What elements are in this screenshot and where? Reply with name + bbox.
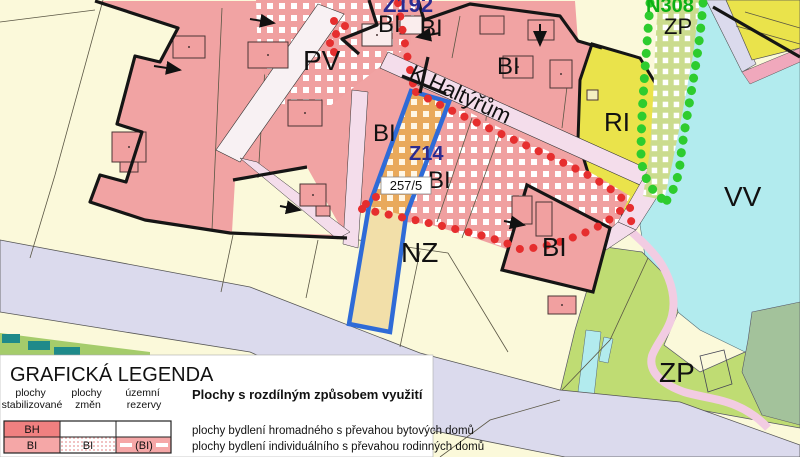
legend-title: GRAFICKÁ LEGENDA <box>10 363 214 386</box>
label-bi-2: BI <box>420 15 443 42</box>
label-bi-6: BI <box>542 232 567 262</box>
label-bi-1: BI <box>378 11 401 38</box>
parcel-number-text: 257/5 <box>390 178 423 193</box>
legend-panel: GRAFICKÁ LEGENDA plochy stabilizované pl… <box>0 355 484 457</box>
legend-code-bh: BH <box>24 424 39 436</box>
label-ri: RI <box>604 107 630 137</box>
label-zp-bottom: ZP <box>659 357 695 388</box>
label-bi-4: BI <box>373 120 396 147</box>
label-nz: NZ <box>401 237 438 268</box>
legend-code-bi-reserve: (BI) <box>135 440 153 452</box>
legend-col-changes: plochy změn <box>71 387 104 411</box>
label-bi-3: BI <box>497 53 520 80</box>
label-pv: PV <box>303 45 341 76</box>
parcel-number-callout[interactable]: 257/5 <box>381 177 431 194</box>
label-zp-top: ZP <box>664 14 692 39</box>
legend-code-bi-change: BI <box>83 440 93 452</box>
label-vv: VV <box>724 181 762 212</box>
label-z14: Z14 <box>409 143 444 165</box>
legend-code-bi: BI <box>27 440 37 452</box>
legend-section-title: Plochy s rozdílným způsobem využití <box>192 387 423 402</box>
label-bi-5: BI <box>428 167 451 194</box>
legend-desc-bi: plochy bydlení individuálního s převahou… <box>192 441 484 453</box>
legend-desc-bh: plochy bydlení hromadného s převahou byt… <box>192 425 474 437</box>
zoning-map-canvas[interactable]: Z192 BI BI PV BI K Haltýřům N308 ZP RI B… <box>0 0 800 457</box>
legend-col-reserves: územní rezervy <box>125 387 162 411</box>
map-viewport: Z192 BI BI PV BI K Haltýřům N308 ZP RI B… <box>0 0 800 457</box>
